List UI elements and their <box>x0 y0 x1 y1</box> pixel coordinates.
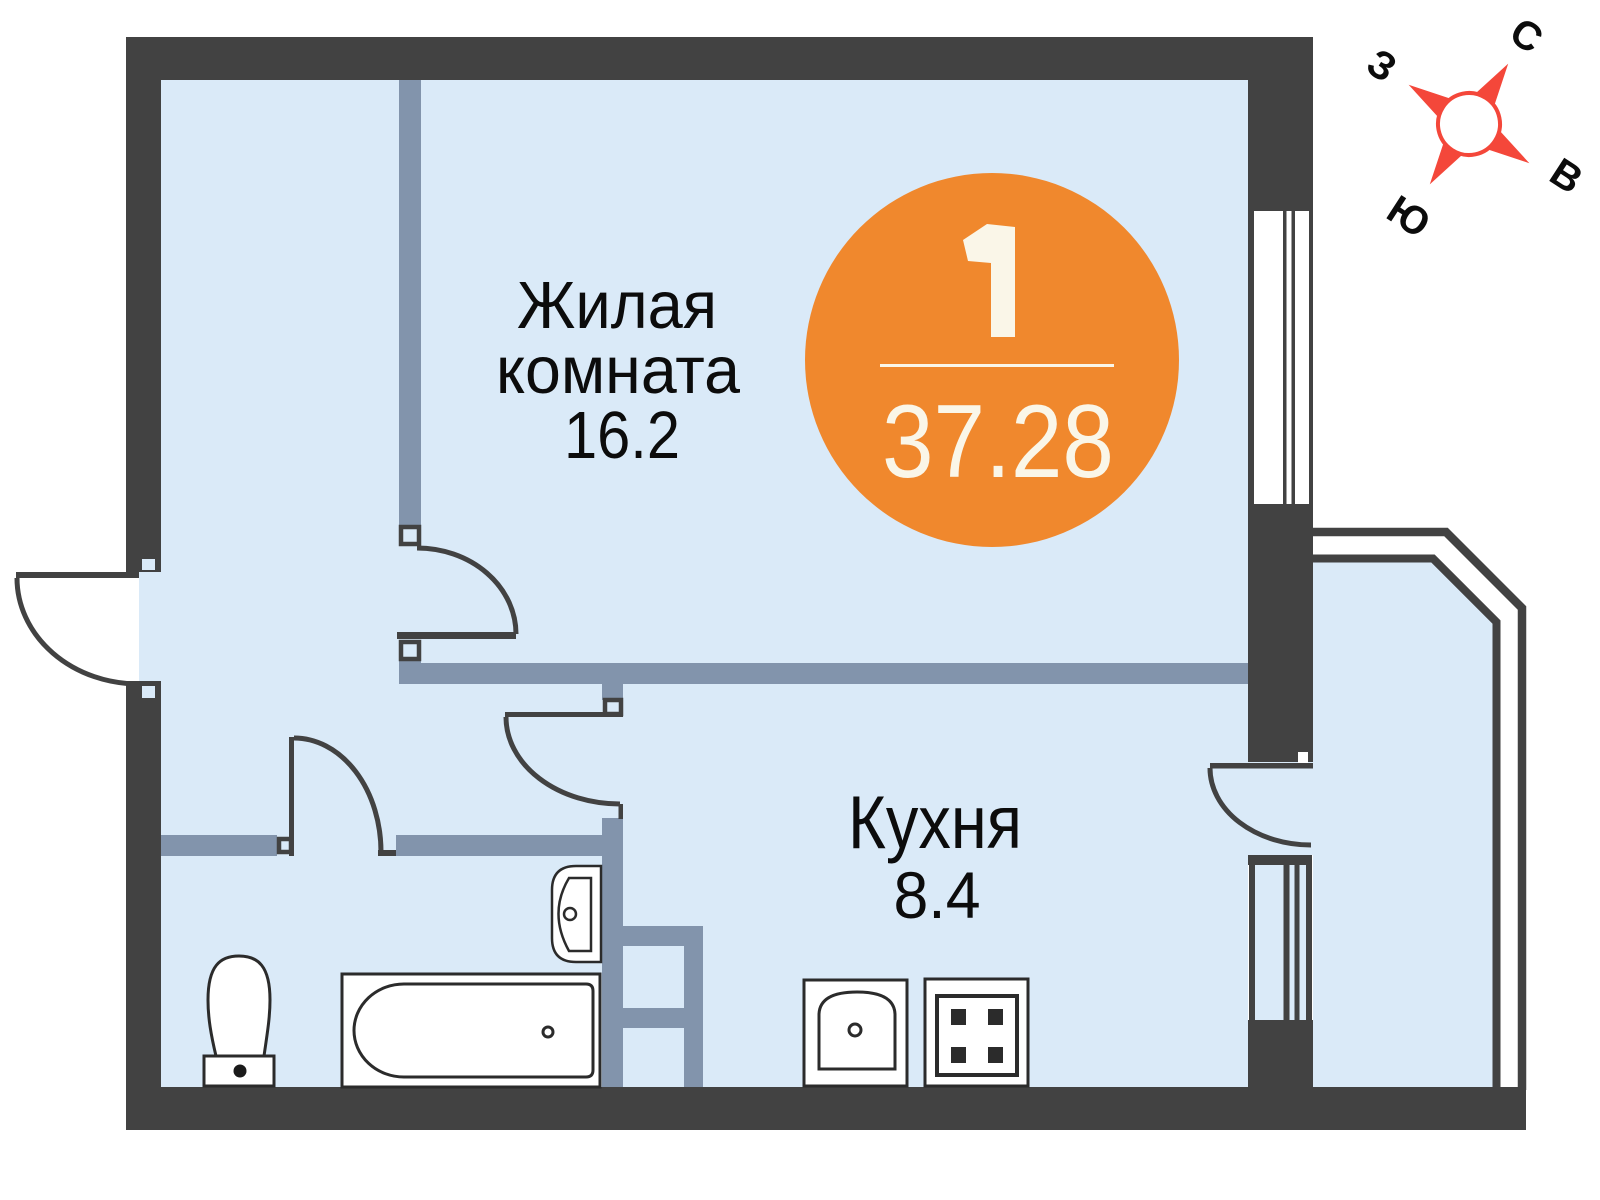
svg-text:8.4: 8.4 <box>894 858 981 932</box>
svg-text:комната: комната <box>496 333 741 408</box>
svg-text:Жилая: Жилая <box>517 268 717 343</box>
svg-text:Кухня: Кухня <box>848 780 1022 864</box>
svg-text:16.2: 16.2 <box>564 398 680 473</box>
svg-text:37.28: 37.28 <box>882 384 1114 500</box>
